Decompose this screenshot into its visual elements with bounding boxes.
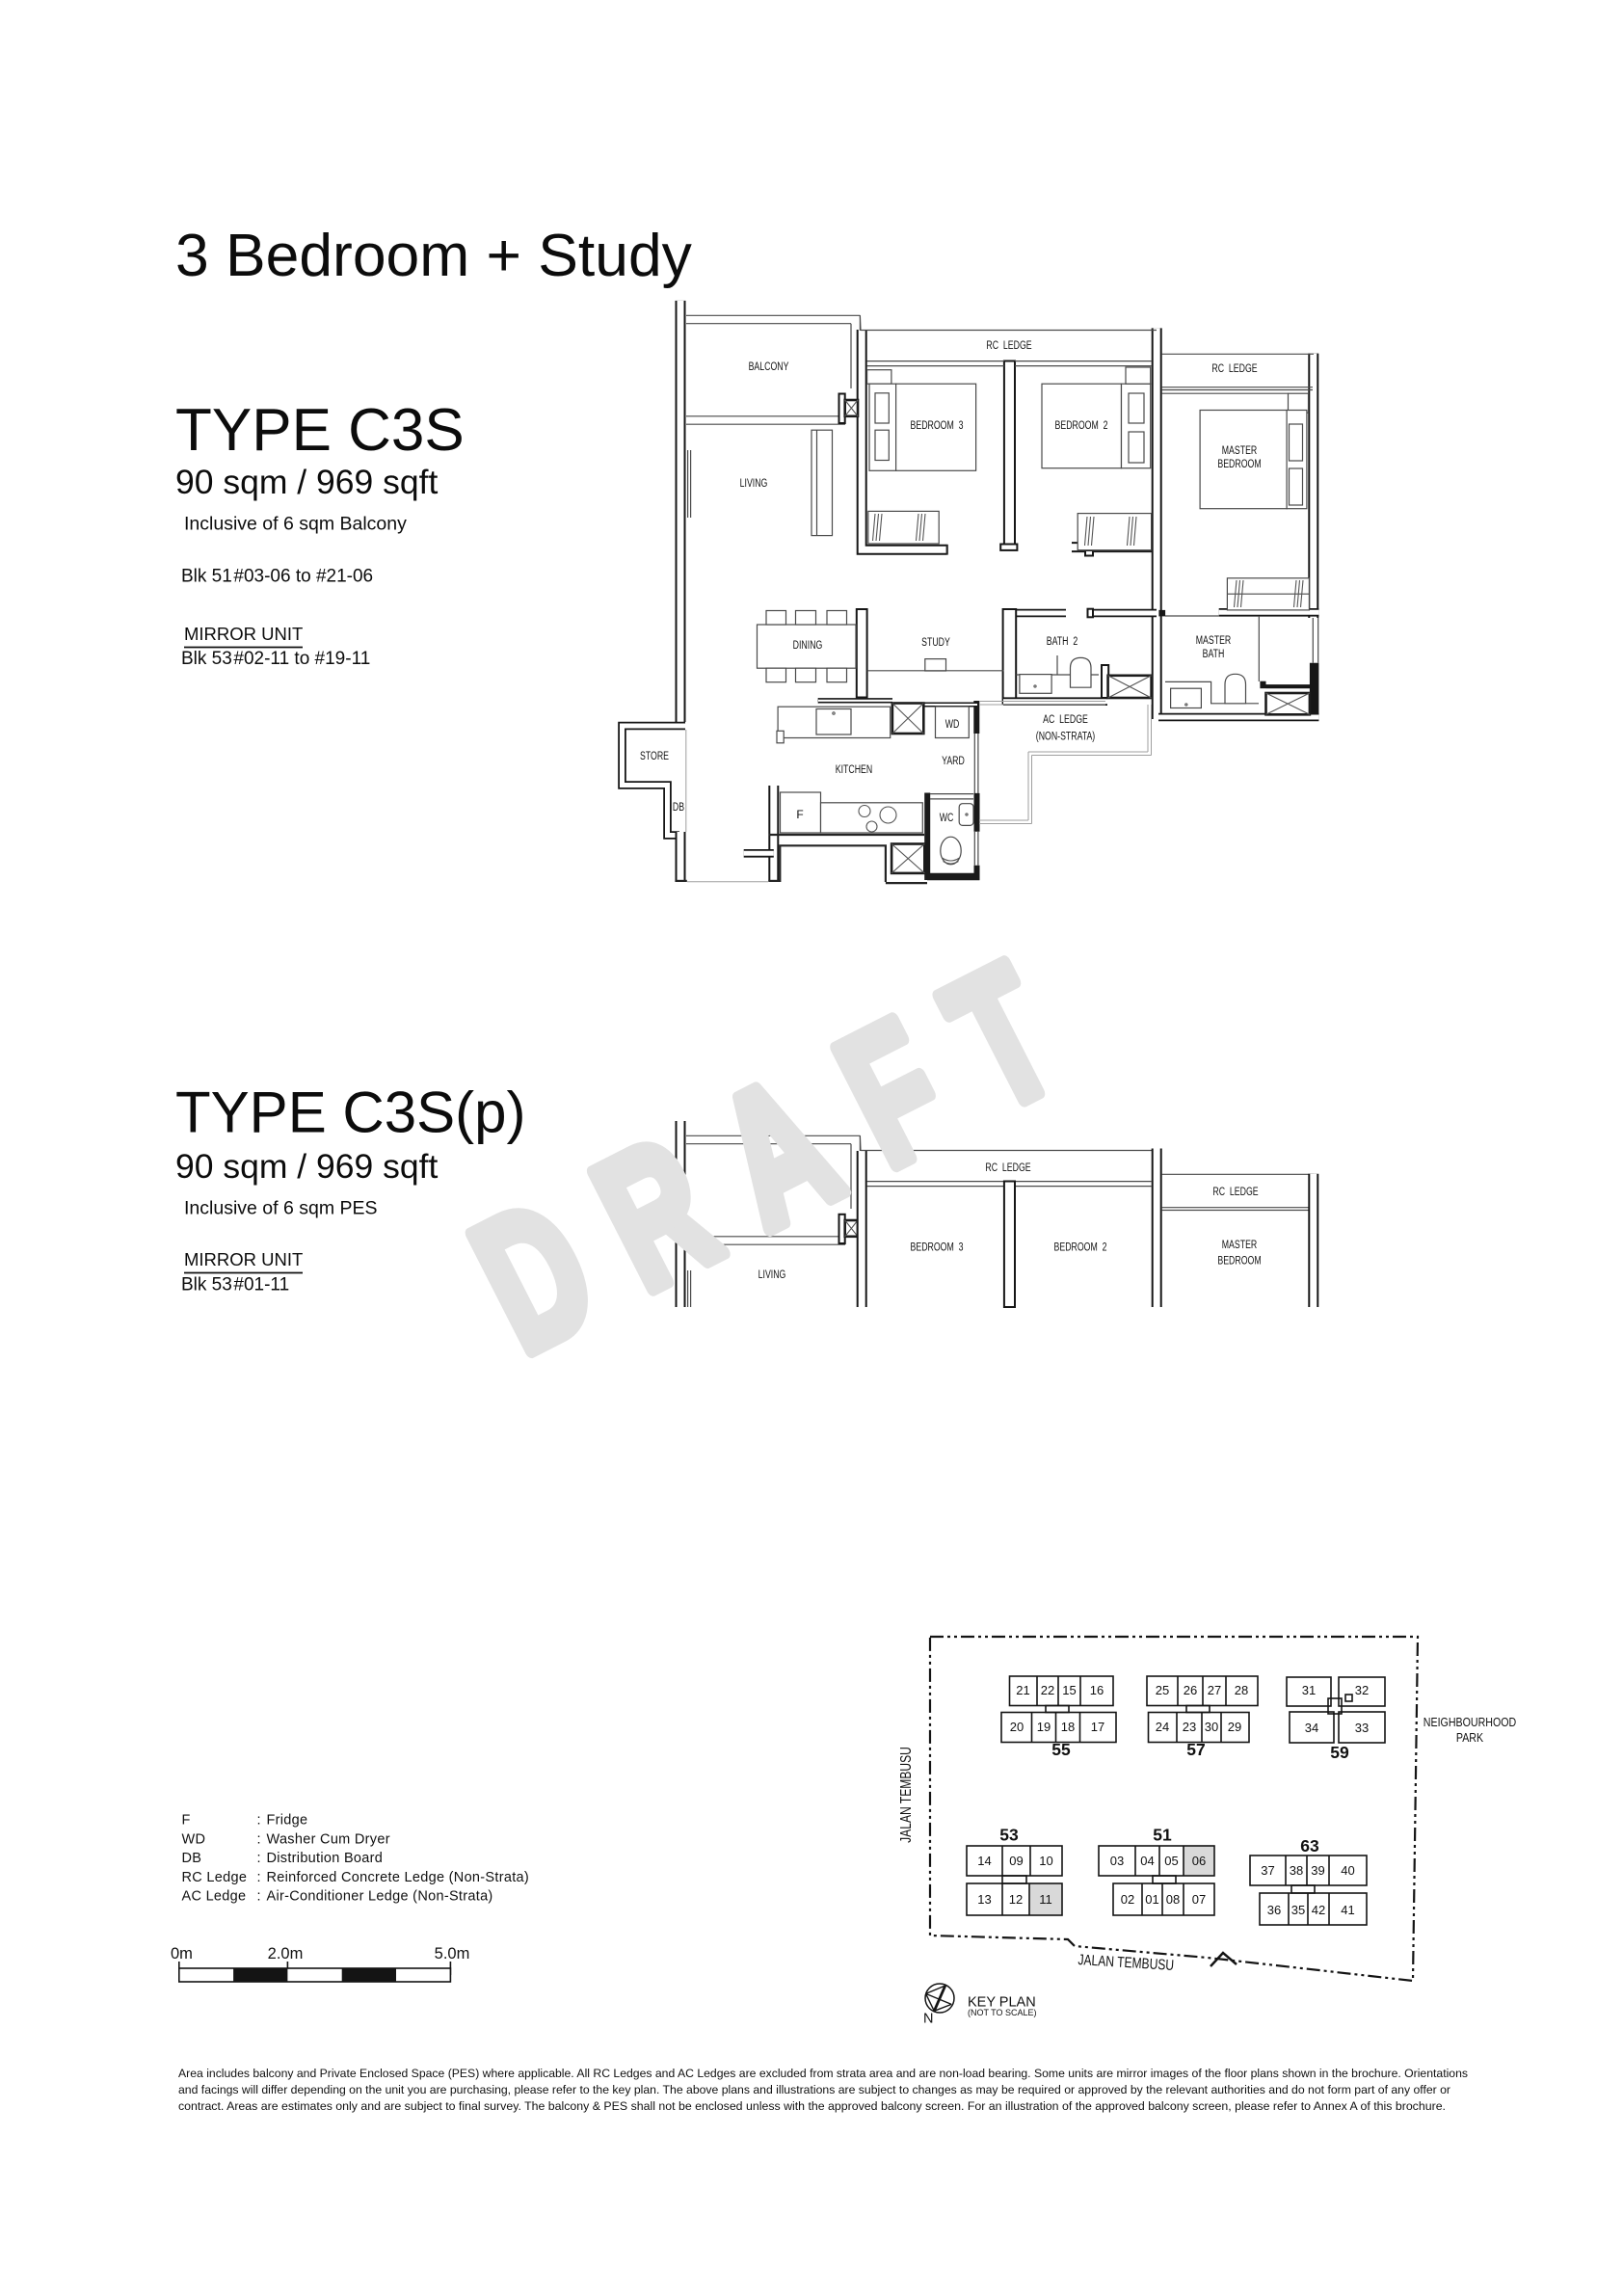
svg-text:STORE: STORE xyxy=(640,750,669,763)
svg-text:Inclusive of 6 sqm Balcony: Inclusive of 6 sqm Balcony xyxy=(184,514,407,535)
svg-text:Blk 51 #03-06 to #21-06: Blk 51 #03-06 to #21-06 xyxy=(181,567,373,587)
svg-text:WD: WD xyxy=(945,718,960,732)
svg-text:5.0m: 5.0m xyxy=(435,1945,470,1962)
svg-text:12: 12 xyxy=(1009,1892,1023,1907)
svg-text:59: 59 xyxy=(1330,1743,1349,1762)
svg-text:06: 06 xyxy=(1192,1854,1206,1868)
svg-text:2.0m: 2.0m xyxy=(268,1945,304,1962)
svg-text:24: 24 xyxy=(1156,1720,1169,1734)
svg-text:AC LEDGE: AC LEDGE xyxy=(1043,713,1088,727)
svg-text:23: 23 xyxy=(1183,1720,1196,1734)
svg-text:BEDROOM 2: BEDROOM 2 xyxy=(1054,1241,1107,1254)
svg-text:Area includes balcony and Priv: Area includes balcony and Private Enclos… xyxy=(178,2067,1468,2080)
svg-text:13: 13 xyxy=(977,1892,991,1907)
svg-text::: : xyxy=(257,1832,261,1848)
svg-text:40: 40 xyxy=(1341,1863,1354,1878)
svg-text:DB: DB xyxy=(182,1851,202,1866)
svg-text:21: 21 xyxy=(1016,1683,1029,1697)
svg-text:02: 02 xyxy=(1121,1892,1134,1907)
svg-text:37: 37 xyxy=(1261,1863,1274,1878)
svg-text:YARD: YARD xyxy=(942,755,965,768)
svg-text:3 Bedroom + Study: 3 Bedroom + Study xyxy=(175,223,693,289)
svg-text:BEDROOM 2: BEDROOM 2 xyxy=(1055,419,1108,433)
svg-text:MASTER: MASTER xyxy=(1222,444,1258,458)
svg-text::: : xyxy=(257,1851,261,1866)
svg-text:STUDY: STUDY xyxy=(921,636,950,650)
svg-text:31: 31 xyxy=(1302,1683,1316,1697)
svg-text:19: 19 xyxy=(1037,1720,1051,1734)
svg-text:Inclusive of 6 sqm PES: Inclusive of 6 sqm PES xyxy=(184,1198,378,1219)
svg-text:NEIGHBOURHOOD: NEIGHBOURHOOD xyxy=(1423,1715,1516,1729)
svg-text:0m: 0m xyxy=(171,1945,193,1962)
svg-text:14: 14 xyxy=(977,1854,991,1868)
svg-text:Washer Cum Dryer: Washer Cum Dryer xyxy=(267,1832,390,1848)
svg-text:08: 08 xyxy=(1166,1892,1180,1907)
svg-text:Reinforced Concrete Ledge (Non: Reinforced Concrete Ledge (Non-Strata) xyxy=(267,1870,530,1885)
svg-text:N: N xyxy=(923,2012,933,2027)
svg-text:26: 26 xyxy=(1184,1683,1197,1697)
svg-text:MIRROR UNIT: MIRROR UNIT xyxy=(184,624,303,644)
svg-text:39: 39 xyxy=(1311,1863,1324,1878)
svg-text:WD: WD xyxy=(182,1832,206,1848)
svg-text:F: F xyxy=(796,808,803,821)
svg-text:MASTER: MASTER xyxy=(1222,1239,1258,1252)
svg-text:TYPE C3S(p): TYPE C3S(p) xyxy=(175,1081,525,1145)
svg-text:38: 38 xyxy=(1290,1863,1303,1878)
svg-text:36: 36 xyxy=(1267,1903,1281,1917)
svg-text:WC: WC xyxy=(940,812,954,825)
svg-text:41: 41 xyxy=(1341,1903,1354,1917)
svg-text:DB: DB xyxy=(673,801,684,814)
svg-text:35: 35 xyxy=(1291,1903,1305,1917)
svg-text:57: 57 xyxy=(1186,1740,1205,1759)
svg-text:07: 07 xyxy=(1192,1892,1206,1907)
svg-text:53: 53 xyxy=(999,1826,1019,1845)
svg-text:PARK: PARK xyxy=(1456,1730,1483,1745)
svg-text:RC Ledge: RC Ledge xyxy=(182,1870,248,1885)
svg-text:RC LEDGE: RC LEDGE xyxy=(986,339,1031,353)
svg-text:BEDROOM: BEDROOM xyxy=(1217,1254,1261,1268)
svg-text:90 sqm / 969 sqft: 90 sqm / 969 sqft xyxy=(175,1147,438,1186)
svg-text:MASTER: MASTER xyxy=(1196,634,1232,648)
svg-text:55: 55 xyxy=(1051,1740,1071,1759)
svg-text:01: 01 xyxy=(1145,1892,1158,1907)
svg-text:Fridge: Fridge xyxy=(267,1813,308,1829)
svg-text:BEDROOM: BEDROOM xyxy=(1217,458,1261,471)
svg-text:DINING: DINING xyxy=(793,639,823,653)
svg-text:29: 29 xyxy=(1228,1720,1241,1734)
svg-text:BATH: BATH xyxy=(1203,648,1225,661)
svg-text:33: 33 xyxy=(1355,1721,1369,1735)
svg-text:30: 30 xyxy=(1205,1720,1218,1734)
svg-text:90 sqm / 969 sqft: 90 sqm / 969 sqft xyxy=(175,463,438,501)
svg-text::: : xyxy=(257,1889,261,1905)
svg-text:BALCONY: BALCONY xyxy=(749,360,789,374)
svg-text:20: 20 xyxy=(1010,1720,1024,1734)
svg-text:04: 04 xyxy=(1140,1854,1154,1868)
svg-text:KITCHEN: KITCHEN xyxy=(836,763,872,777)
svg-text:42: 42 xyxy=(1312,1903,1325,1917)
svg-text:Air-Conditioner Ledge (Non-Str: Air-Conditioner Ledge (Non-Strata) xyxy=(267,1889,493,1905)
svg-text:63: 63 xyxy=(1300,1836,1319,1855)
svg-text:28: 28 xyxy=(1235,1683,1248,1697)
svg-text:and facings will differ depend: and facings will differ depending on the… xyxy=(178,2083,1450,2096)
svg-text:03: 03 xyxy=(1110,1854,1124,1868)
svg-text:10: 10 xyxy=(1039,1854,1052,1868)
svg-text:25: 25 xyxy=(1156,1683,1169,1697)
svg-text:JALAN TEMBUSU: JALAN TEMBUSU xyxy=(897,1747,915,1843)
svg-text:AC Ledge: AC Ledge xyxy=(182,1889,247,1905)
svg-text:Blk 53 #02-11 to #19-11: Blk 53 #02-11 to #19-11 xyxy=(181,649,370,669)
svg-text:(NOT TO SCALE): (NOT TO SCALE) xyxy=(968,2008,1037,2017)
svg-text:BEDROOM 3: BEDROOM 3 xyxy=(911,419,964,433)
svg-text:05: 05 xyxy=(1164,1854,1178,1868)
svg-text:51: 51 xyxy=(1153,1826,1172,1845)
svg-text:BATH 2: BATH 2 xyxy=(1047,635,1078,649)
svg-text:TYPE C3S: TYPE C3S xyxy=(175,397,465,464)
svg-text:22: 22 xyxy=(1041,1683,1054,1697)
svg-text::: : xyxy=(257,1813,261,1829)
svg-text:27: 27 xyxy=(1208,1683,1221,1697)
svg-text:15: 15 xyxy=(1062,1683,1076,1697)
svg-text:18: 18 xyxy=(1061,1720,1075,1734)
svg-text:17: 17 xyxy=(1091,1720,1104,1734)
svg-text:(NON-STRATA): (NON-STRATA) xyxy=(1036,730,1095,743)
svg-text::: : xyxy=(257,1870,261,1885)
svg-text:09: 09 xyxy=(1009,1854,1023,1868)
svg-text:16: 16 xyxy=(1090,1683,1104,1697)
svg-text:RC LEDGE: RC LEDGE xyxy=(985,1161,1030,1175)
svg-text:contract. Areas are estimates: contract. Areas are estimates only and a… xyxy=(178,2099,1446,2113)
svg-text:RC LEDGE: RC LEDGE xyxy=(1212,1186,1258,1199)
svg-text:LIVING: LIVING xyxy=(740,477,768,491)
svg-text:11: 11 xyxy=(1039,1892,1052,1907)
svg-text:F: F xyxy=(182,1813,191,1829)
svg-text:32: 32 xyxy=(1355,1683,1369,1697)
svg-text:34: 34 xyxy=(1305,1721,1318,1735)
svg-text:BEDROOM 3: BEDROOM 3 xyxy=(911,1241,964,1254)
svg-text:MIRROR UNIT: MIRROR UNIT xyxy=(184,1249,303,1269)
svg-text:RC LEDGE: RC LEDGE xyxy=(1211,362,1257,376)
svg-text:Blk 53 #01-11: Blk 53 #01-11 xyxy=(181,1275,289,1295)
svg-text:Distribution Board: Distribution Board xyxy=(267,1851,384,1866)
